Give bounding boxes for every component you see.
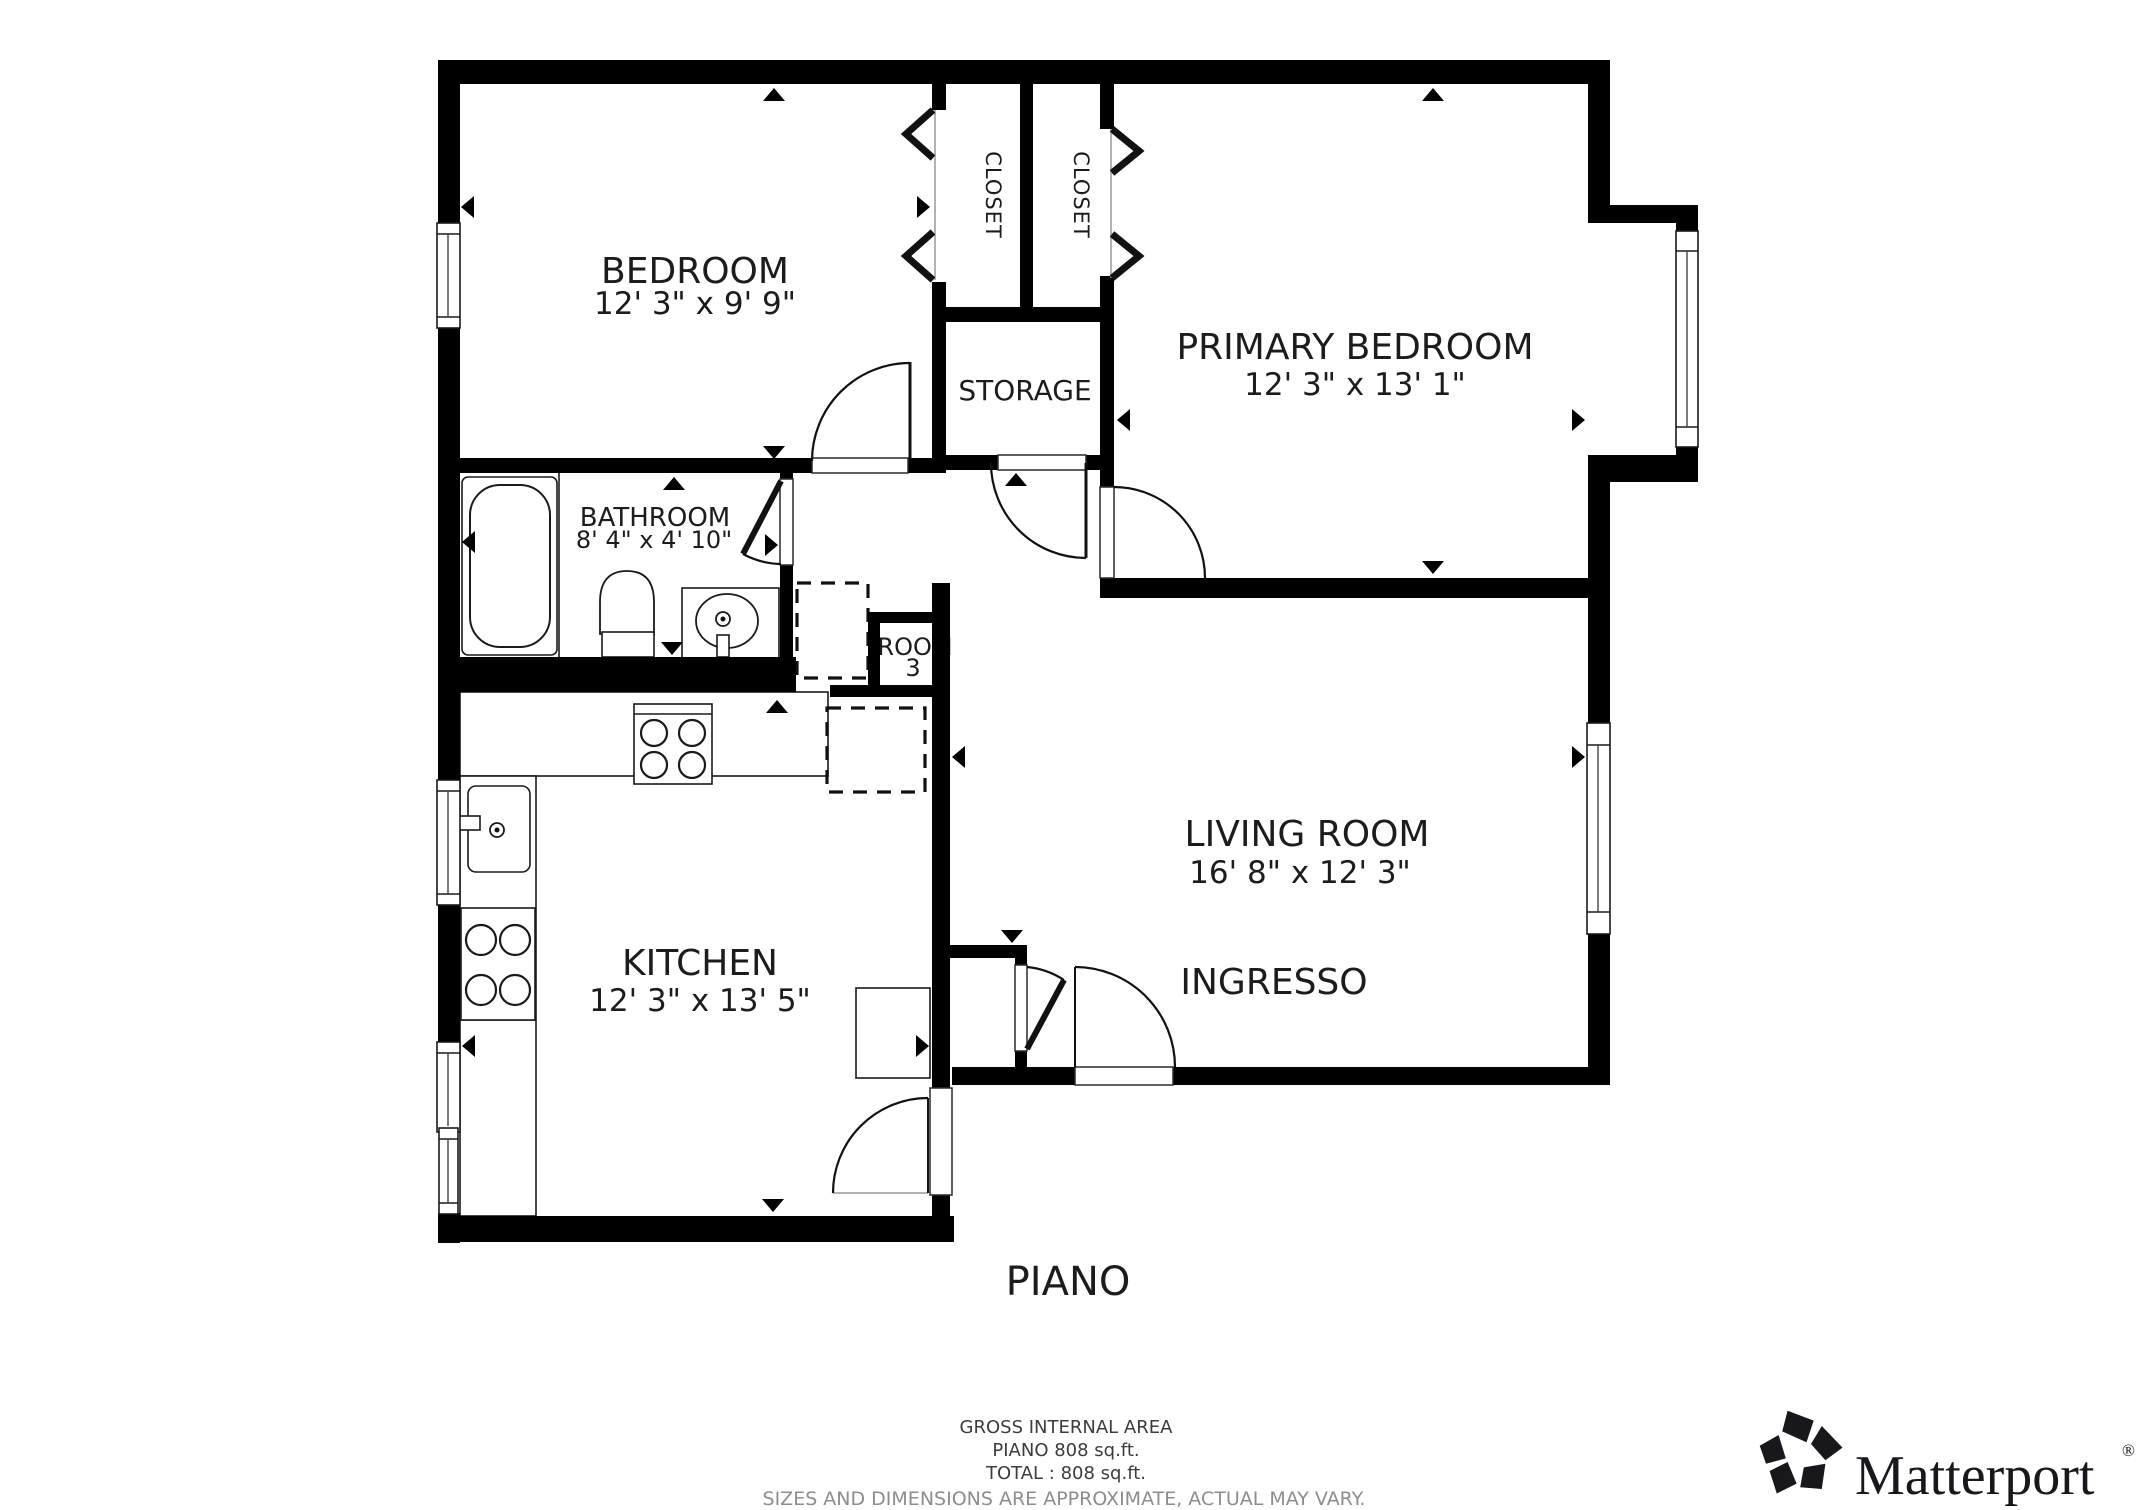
dimension-arrow-icon [661, 642, 683, 655]
wall-segment [932, 1195, 950, 1242]
window [1676, 231, 1698, 447]
door-arc [743, 554, 781, 564]
room-dims-kitchen: 12' 3" x 13' 5" [589, 983, 811, 1019]
door-arc [1027, 967, 1064, 980]
dimension-arrow-icon [917, 196, 930, 218]
bathtub [462, 477, 557, 655]
window [439, 1128, 458, 1214]
wall-segment [908, 458, 946, 473]
dimension-arrow-icon [1005, 473, 1027, 486]
room-label-primary-bedroom: PRIMARY BEDROOM [1176, 327, 1533, 368]
dashed-appliance [797, 583, 868, 678]
door-opening [812, 458, 908, 473]
dimension-arrow-icon [1422, 88, 1444, 101]
kitchen-drain-dot [495, 828, 500, 833]
dimension-arrow-icon [1422, 561, 1444, 574]
door-opening [1015, 965, 1027, 1051]
door-opening [780, 479, 793, 565]
wall-segment [1100, 578, 1610, 598]
room-label-ingresso: INGRESSO [1180, 962, 1367, 1003]
dimension-arrow-icon [1001, 930, 1023, 943]
bifold-door-icon [906, 232, 933, 280]
matterport-wordmark: Matterport [1855, 1445, 2095, 1507]
door-leaf [1027, 980, 1064, 1049]
room-label-storage: STORAGE [958, 374, 1091, 407]
wall-segment [1100, 276, 1114, 487]
toilet-tank [602, 632, 654, 657]
dimension-arrow-icon [765, 534, 778, 556]
wall-segment [932, 583, 950, 1088]
matterport-mark-icon [1760, 1411, 1843, 1494]
door-arc [991, 463, 1086, 558]
wall-segment [1173, 1067, 1610, 1085]
kitchen-sink-handle [459, 816, 480, 830]
dimension-arrow-icon [663, 477, 685, 490]
footer-gross-area: GROSS INTERNAL AREA [960, 1417, 1174, 1438]
dashed-appliance [827, 708, 925, 792]
footer-total-area: TOTAL : 808 sq.ft. [985, 1463, 1146, 1484]
wall-segment [438, 328, 460, 780]
room-dims-bedroom: 12' 3" x 9' 9" [594, 286, 796, 322]
window [437, 223, 460, 328]
wall-segment [440, 60, 1610, 84]
floor-plan-page: BEDROOM 12' 3" x 9' 9" CLOSET CLOSET PRI… [0, 0, 2144, 1510]
door-arc [812, 363, 910, 461]
window [1587, 723, 1610, 934]
sink-drain-dot [721, 617, 726, 622]
wall-segment [1086, 455, 1102, 470]
wall-segment [1588, 933, 1610, 1085]
bifold-door-icon [1112, 129, 1139, 173]
annotations: PIANO GROSS INTERNAL AREA PIANO 808 sq.f… [763, 1259, 1366, 1510]
wall-segment [1020, 84, 1033, 314]
wall-segment [1588, 482, 1610, 723]
window [437, 780, 460, 905]
wall-segment [780, 565, 793, 659]
wall-segment [868, 612, 880, 688]
footer-piano-area: PIANO 808 sq.ft. [992, 1440, 1139, 1461]
wall-segment [952, 1067, 1075, 1085]
wall-segment [932, 84, 946, 110]
dimension-arrow-icon [762, 1199, 784, 1212]
wall-segment [438, 657, 796, 692]
wall-segment [438, 1216, 954, 1242]
door-opening [998, 455, 1086, 470]
wall-segment [1015, 945, 1027, 965]
room-dims-primary-bedroom: 12' 3" x 13' 1" [1244, 367, 1466, 403]
room-dims-bathroom: 8' 4" x 4' 10" [576, 526, 732, 554]
wall-segment [438, 458, 812, 473]
wall-segment [932, 945, 1027, 958]
dimension-arrow-icon [1572, 746, 1585, 768]
dimension-arrow-icon [1572, 409, 1585, 431]
entry-door-arc [1075, 967, 1175, 1067]
wall-segment [780, 473, 793, 479]
door-arc [1114, 487, 1205, 578]
wall-segment [438, 60, 460, 223]
bifold-door-icon [906, 110, 933, 158]
wall-segment [438, 905, 460, 1042]
room-label-kitchen: KITCHEN [622, 943, 778, 984]
footer-disclaimer: SIZES AND DIMENSIONS ARE APPROXIMATE, AC… [763, 1488, 1366, 1510]
floor-plan-drawing: BEDROOM 12' 3" x 9' 9" CLOSET CLOSET PRI… [0, 0, 2144, 1510]
fixtures [459, 473, 930, 1216]
door-opening [930, 1088, 952, 1195]
wall-segment [1015, 1051, 1027, 1085]
dimension-arrow-icon [763, 88, 785, 101]
room-label-closet-right: CLOSET [1069, 151, 1093, 239]
window [437, 1042, 460, 1132]
dimension-arrow-icon [1117, 409, 1130, 431]
dimension-arrow-icon [952, 746, 965, 768]
matterport-logo: Matterport ® [1760, 1411, 2135, 1507]
room-label-closet-left: CLOSET [981, 151, 1005, 239]
entry-door-opening [1075, 1067, 1173, 1085]
wall-segment [1100, 84, 1114, 129]
room-label-living-room: LIVING ROOM [1185, 814, 1430, 855]
wall-segment [1588, 60, 1610, 223]
door-opening [1100, 487, 1114, 578]
floor-label: PIANO [1006, 1259, 1131, 1305]
sink-fitting [717, 635, 729, 657]
wall-segment [1588, 455, 1698, 482]
door-arc [833, 1098, 928, 1193]
wall-segment [1676, 205, 1698, 233]
bifold-door-icon [1112, 234, 1139, 278]
registered-trademark-icon: ® [2122, 1441, 2135, 1460]
dimension-arrow-icon [461, 196, 474, 218]
room-number-room3: 3 [905, 654, 920, 682]
dimension-arrow-icon [763, 446, 785, 459]
entry-cabinet [856, 988, 930, 1078]
room-dims-living-room: 16' 8" x 12' 3" [1189, 855, 1411, 891]
toilet [600, 571, 654, 634]
